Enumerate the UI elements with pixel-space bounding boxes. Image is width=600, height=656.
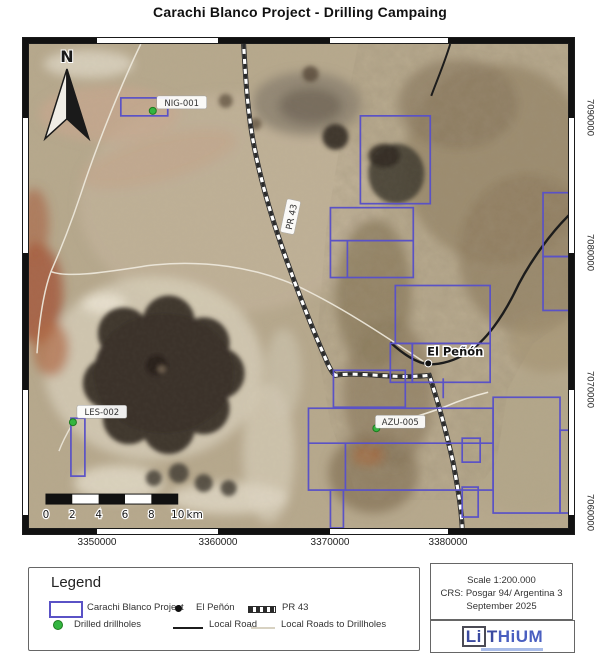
- map-info-box: Scale 1:200.000 CRS: Posgar 94/ Argentin…: [430, 563, 573, 620]
- drillhole-label-azu: AZU-005: [375, 415, 425, 428]
- town-dot-icon: [175, 605, 182, 612]
- drillhole-label-les: LES-002: [77, 405, 127, 418]
- legend-item-label: Carachi Blanco Project: [87, 602, 184, 613]
- svg-text:NIG-001: NIG-001: [164, 98, 199, 108]
- drillhole-label-nig: NIG-001: [157, 96, 207, 109]
- x-axis-tick: 3380000: [413, 537, 483, 548]
- local-road-swatch: [173, 627, 203, 629]
- project-boundary-swatch: [49, 601, 83, 618]
- graticule-strip-bottom: [23, 529, 574, 534]
- figure-title: Carachi Blanco Project - Drilling Campai…: [0, 4, 600, 20]
- logo-tagline-bar: [481, 648, 543, 651]
- y-axis-tick: 7070000: [585, 368, 596, 412]
- drillhole-dot-icon: [53, 620, 63, 630]
- svg-text:2: 2: [69, 509, 76, 521]
- logo-li-mark: Li: [462, 626, 486, 647]
- map-frame: NIG-001 LES-002 AZU-005 El Peñón PR 43: [22, 37, 575, 535]
- legend-item-label: Drilled drillholes: [74, 619, 141, 630]
- legend-item-label: PR 43: [282, 602, 308, 613]
- town-label-el-penon: El Peñón: [427, 344, 483, 358]
- svg-text:LES-002: LES-002: [85, 407, 120, 417]
- logo-word-mark: HiUM: [498, 627, 543, 647]
- figure-root: Carachi Blanco Project - Drilling Campai…: [0, 0, 600, 656]
- pr43-road-swatch: [248, 606, 276, 613]
- lithium-logo: Li T HiUM: [462, 626, 543, 647]
- drillhole-road-swatch: [251, 627, 275, 629]
- svg-text:4: 4: [95, 509, 102, 521]
- x-axis-tick: 3370000: [295, 537, 365, 548]
- logo-box: Li T HiUM: [430, 620, 575, 653]
- scale-bar-unit: km: [187, 509, 203, 521]
- map-svg: NIG-001 LES-002 AZU-005 El Peñón PR 43: [29, 44, 568, 528]
- legend: Legend Carachi Blanco Project El Peñón P…: [28, 567, 420, 651]
- map-scale-text: Scale 1:200.000: [431, 574, 572, 587]
- drillhole-marker-nig: [149, 107, 156, 114]
- legend-title: Legend: [51, 574, 101, 591]
- legend-item-label: Local Roads to Drillholes: [281, 619, 386, 630]
- x-axis-tick: 3360000: [183, 537, 253, 548]
- drillhole-marker-les: [69, 419, 76, 426]
- town-marker-el-penon: [425, 360, 432, 367]
- map-date-text: September 2025: [431, 600, 572, 613]
- svg-text:6: 6: [122, 509, 129, 521]
- graticule-strip-right: [569, 38, 574, 534]
- legend-item-label: El Peñón: [196, 602, 235, 613]
- map-crs-text: CRS: Posgar 94/ Argentina 3: [431, 587, 572, 600]
- y-axis-tick: 7060000: [585, 491, 596, 535]
- svg-text:AZU-005: AZU-005: [382, 417, 419, 427]
- svg-text:10: 10: [171, 509, 184, 521]
- svg-text:N: N: [60, 47, 73, 66]
- map-canvas: NIG-001 LES-002 AZU-005 El Peñón PR 43: [28, 43, 569, 529]
- x-axis-tick: 3350000: [62, 537, 132, 548]
- svg-text:8: 8: [148, 509, 155, 521]
- y-axis-tick: 7080000: [585, 231, 596, 275]
- svg-text:0: 0: [43, 509, 50, 521]
- logo-t-mark: T: [487, 627, 498, 647]
- legend-item-label: Local Road: [209, 619, 257, 630]
- y-axis-tick: 7090000: [585, 96, 596, 140]
